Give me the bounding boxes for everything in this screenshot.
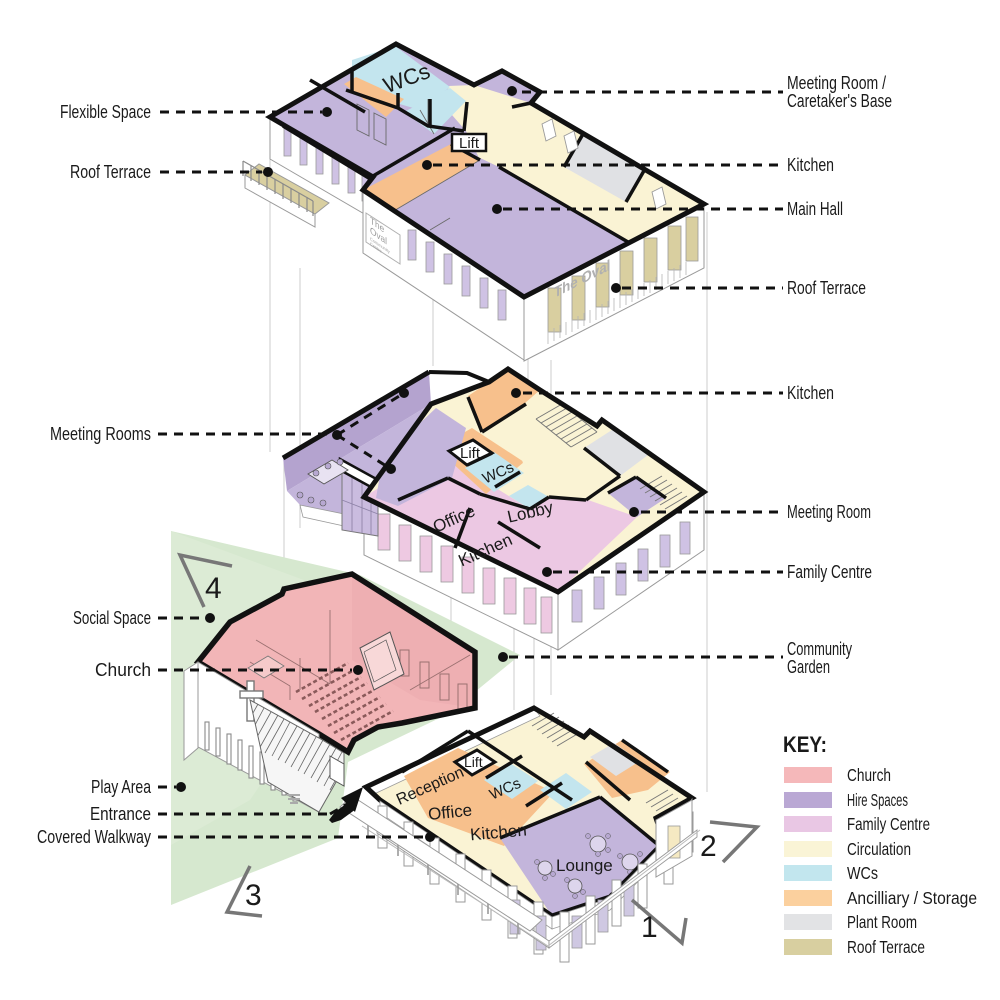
svg-text:Ancilliary / Storage: Ancilliary / Storage <box>847 888 977 908</box>
svg-text:Meeting Rooms: Meeting Rooms <box>50 423 151 444</box>
svg-text:1: 1 <box>641 911 658 944</box>
svg-text:WCs: WCs <box>847 863 878 883</box>
svg-text:Play Area: Play Area <box>91 776 152 797</box>
svg-text:Church: Church <box>847 765 891 785</box>
svg-text:Church: Church <box>95 659 151 680</box>
svg-text:Lounge: Lounge <box>556 856 613 875</box>
svg-text:Meeting Room: Meeting Room <box>787 501 871 522</box>
svg-text:Kitchen: Kitchen <box>787 154 834 175</box>
svg-text:Roof Terrace: Roof Terrace <box>70 161 151 182</box>
svg-text:Caretaker's Base: Caretaker's Base <box>787 90 892 111</box>
svg-text:Lift: Lift <box>460 445 481 462</box>
svg-text:Flexible Space: Flexible Space <box>60 101 151 122</box>
svg-text:Circulation: Circulation <box>847 839 911 859</box>
svg-text:Roof Terrace: Roof Terrace <box>847 937 925 957</box>
svg-text:Hire Spaces: Hire Spaces <box>847 790 908 810</box>
svg-text:Lift: Lift <box>459 135 480 152</box>
svg-text:Main Hall: Main Hall <box>787 198 843 219</box>
svg-text:4: 4 <box>205 572 222 605</box>
svg-text:2: 2 <box>700 830 717 863</box>
svg-text:Family Centre: Family Centre <box>787 561 872 582</box>
svg-text:Covered Walkway: Covered Walkway <box>37 826 152 847</box>
svg-text:Plant Room: Plant Room <box>847 912 917 932</box>
svg-text:Entrance: Entrance <box>90 803 151 824</box>
svg-text:3: 3 <box>245 879 262 912</box>
svg-text:Roof Terrace: Roof Terrace <box>787 277 866 298</box>
svg-text:KEY:: KEY: <box>783 732 827 757</box>
svg-text:Kitchen: Kitchen <box>787 382 834 403</box>
svg-text:Social Space: Social Space <box>73 607 151 628</box>
svg-text:Family Centre: Family Centre <box>847 814 930 834</box>
svg-text:Lift: Lift <box>464 754 483 770</box>
svg-text:Garden: Garden <box>787 656 830 677</box>
